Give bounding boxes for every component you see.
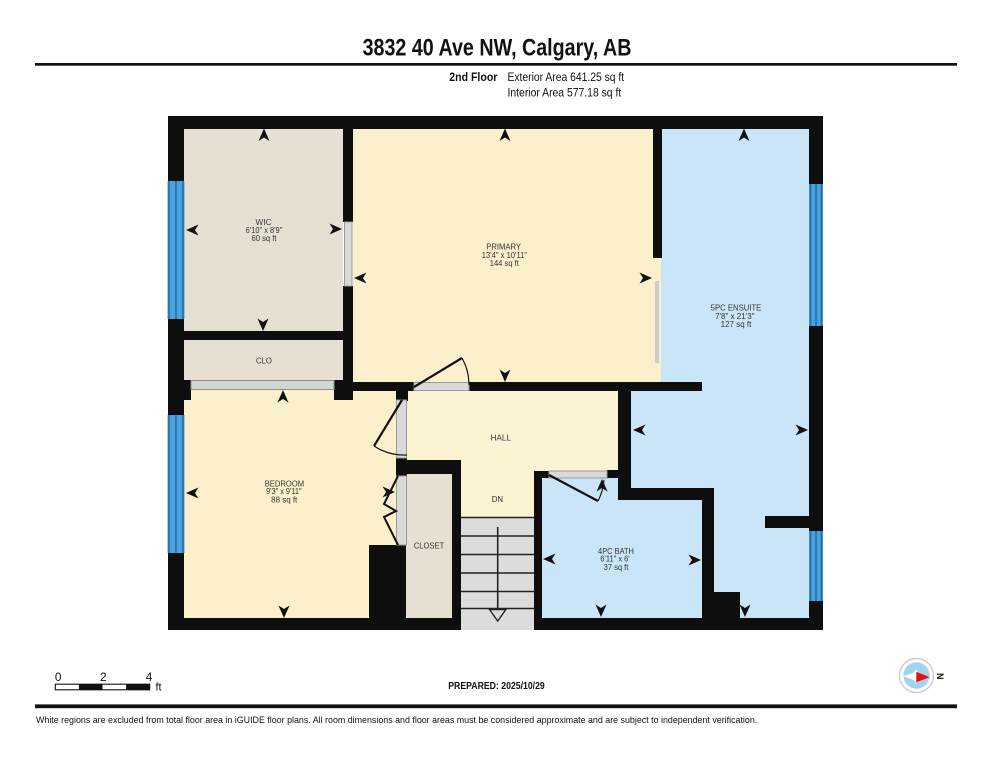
svg-text:127 sq ft: 127 sq ft: [721, 320, 752, 329]
svg-text:88 sq ft: 88 sq ft: [271, 496, 298, 505]
svg-text:PREPARED: 2025/10/29: PREPARED: 2025/10/29: [448, 680, 544, 692]
svg-text:White regions are excluded fro: White regions are excluded from total fl…: [36, 715, 757, 725]
svg-text:4: 4: [146, 670, 153, 684]
svg-text:2: 2: [100, 670, 107, 684]
svg-text:CLOSET: CLOSET: [414, 541, 444, 551]
svg-text:2nd Floor: 2nd Floor: [449, 72, 498, 85]
svg-text:ft: ft: [156, 682, 162, 694]
svg-text:144 sq ft: 144 sq ft: [490, 259, 520, 268]
svg-text:37 sq ft: 37 sq ft: [604, 563, 630, 572]
svg-text:N: N: [935, 673, 945, 680]
svg-text:CLO: CLO: [256, 356, 272, 365]
svg-text:3832 40 Ave NW, Calgary, AB: 3832 40 Ave NW, Calgary, AB: [363, 33, 632, 61]
svg-text:Interior Area 577.18 sq ft: Interior Area 577.18 sq ft: [508, 87, 623, 100]
svg-text:DN: DN: [492, 495, 504, 504]
svg-text:9'3" x 9'11": 9'3" x 9'11": [266, 487, 302, 496]
svg-text:Exterior Area 641.25 sq ft: Exterior Area 641.25 sq ft: [508, 72, 625, 85]
svg-text:0: 0: [55, 670, 62, 684]
svg-text:60 sq ft: 60 sq ft: [252, 234, 278, 243]
svg-text:HALL: HALL: [491, 433, 512, 442]
